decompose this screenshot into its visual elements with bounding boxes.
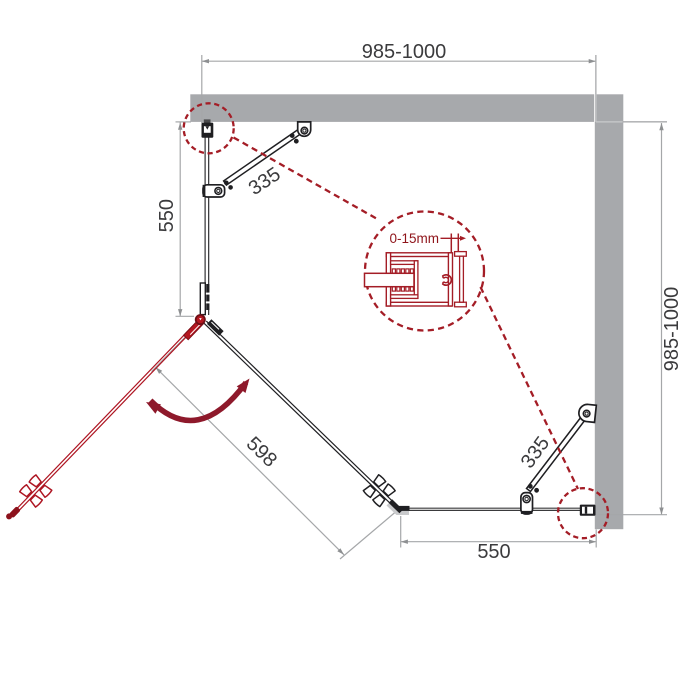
svg-text:598: 598: [242, 433, 281, 472]
svg-text:985-1000: 985-1000: [661, 287, 683, 372]
svg-text:550: 550: [156, 199, 178, 232]
svg-text:550: 550: [477, 541, 510, 563]
svg-text:0-15mm: 0-15mm: [390, 231, 440, 246]
svg-text:985-1000: 985-1000: [362, 41, 447, 63]
